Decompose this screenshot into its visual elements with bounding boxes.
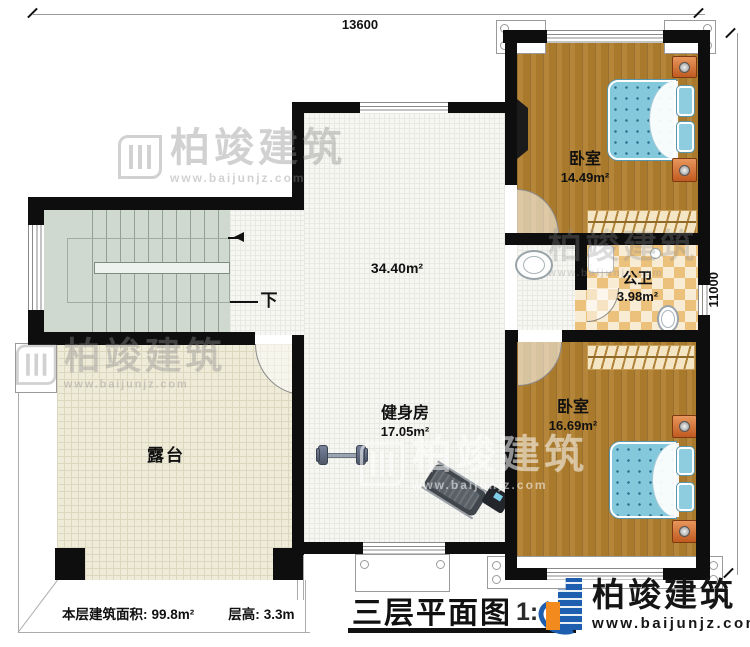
pillow-icon [677, 447, 694, 475]
terrace-corner-symbol [15, 343, 57, 393]
bathroom-sink-icon [588, 245, 614, 273]
room-area: 17.05m² [360, 424, 450, 440]
room-name: 卧室 [528, 398, 618, 418]
wall [292, 335, 304, 555]
room-label-terrace: 露台 [135, 445, 197, 466]
room-area: 16.69m² [528, 418, 618, 434]
room-name: 露台 [135, 445, 197, 466]
wall [575, 245, 587, 290]
wall [292, 102, 304, 207]
window [360, 102, 448, 113]
dimension-top-value: 13600 [320, 17, 400, 32]
window [28, 225, 44, 310]
floor-drain-icon [650, 248, 661, 259]
wall [28, 332, 255, 345]
pillow-icon [677, 86, 694, 116]
nightstand-icon [672, 415, 697, 438]
floor-height-label: 层高: [228, 607, 260, 622]
room-label-hall: 34.40m² [352, 260, 442, 278]
toilet-seat-icon [661, 310, 675, 328]
hall-corridor-floor [230, 210, 304, 335]
nightstand-icon [672, 158, 697, 182]
wall [28, 197, 304, 210]
eave-line [305, 580, 306, 632]
tv-icon [517, 99, 528, 159]
down-leader-line [230, 301, 258, 303]
room-label-bathroom: 公卫 3.98m² [595, 270, 680, 305]
room-name: 公卫 [595, 270, 680, 289]
wardrobe-icon [587, 345, 695, 370]
nightstand-icon [672, 56, 697, 78]
floor-area-value: 99.8m² [152, 607, 195, 622]
room-name: 卧室 [540, 150, 630, 170]
window [363, 542, 445, 554]
terrace-column [55, 548, 85, 580]
dimension-tick [725, 28, 736, 39]
room-label-gym: 健身房 17.05m² [360, 404, 450, 440]
pillow-icon [677, 483, 694, 511]
dimension-line-right [737, 33, 738, 575]
wall [505, 233, 710, 245]
washbasin-bowl [523, 256, 545, 274]
terrace-column [273, 548, 303, 580]
dimension-tick [27, 8, 38, 19]
page-title: 三层平面图 [352, 588, 512, 632]
wall [696, 342, 710, 580]
stair-down-label: 下 [258, 290, 280, 311]
floor-info: 本层建筑面积:99.8m²层高:3.3m [62, 603, 299, 623]
floor-height-value: 3.3m [264, 607, 295, 622]
watermark-logo-icon [118, 135, 162, 179]
brand-logo-icon [540, 578, 586, 636]
eave-diagonal [18, 579, 59, 632]
brand-name: 柏竣建筑 [592, 578, 750, 611]
stair-direction-arrow [234, 232, 244, 242]
dimension-right-value: 11000 [706, 272, 721, 307]
brand-logo: 柏竣建筑 www.baijunjz.com [540, 578, 750, 636]
dimension-tick [693, 8, 704, 19]
brand-url: www.baijunjz.com [592, 615, 750, 632]
stair-handrail [94, 262, 230, 274]
scale-label: 1: [516, 598, 538, 627]
eave-line [18, 632, 310, 633]
dimension-line-top [33, 14, 705, 15]
room-label-bedroom2: 卧室 16.69m² [528, 398, 618, 434]
floor-plan-canvas: 下 [0, 0, 750, 647]
pillow-icon [677, 122, 694, 152]
floor-area-label: 本层建筑面积: [62, 607, 148, 622]
room-name: 健身房 [360, 404, 450, 424]
room-label-bedroom1: 卧室 14.49m² [540, 150, 630, 186]
window [547, 30, 663, 43]
room-area: 34.40m² [352, 260, 442, 278]
wall [505, 30, 517, 185]
eave-line [303, 554, 304, 600]
dumbbell-icon [316, 444, 368, 466]
wardrobe-icon [587, 210, 697, 234]
nightstand-icon [672, 520, 697, 543]
room-area: 3.98m² [595, 289, 680, 305]
window-sill-band [355, 554, 450, 592]
room-area: 14.49m² [540, 170, 630, 186]
wall [562, 330, 710, 342]
